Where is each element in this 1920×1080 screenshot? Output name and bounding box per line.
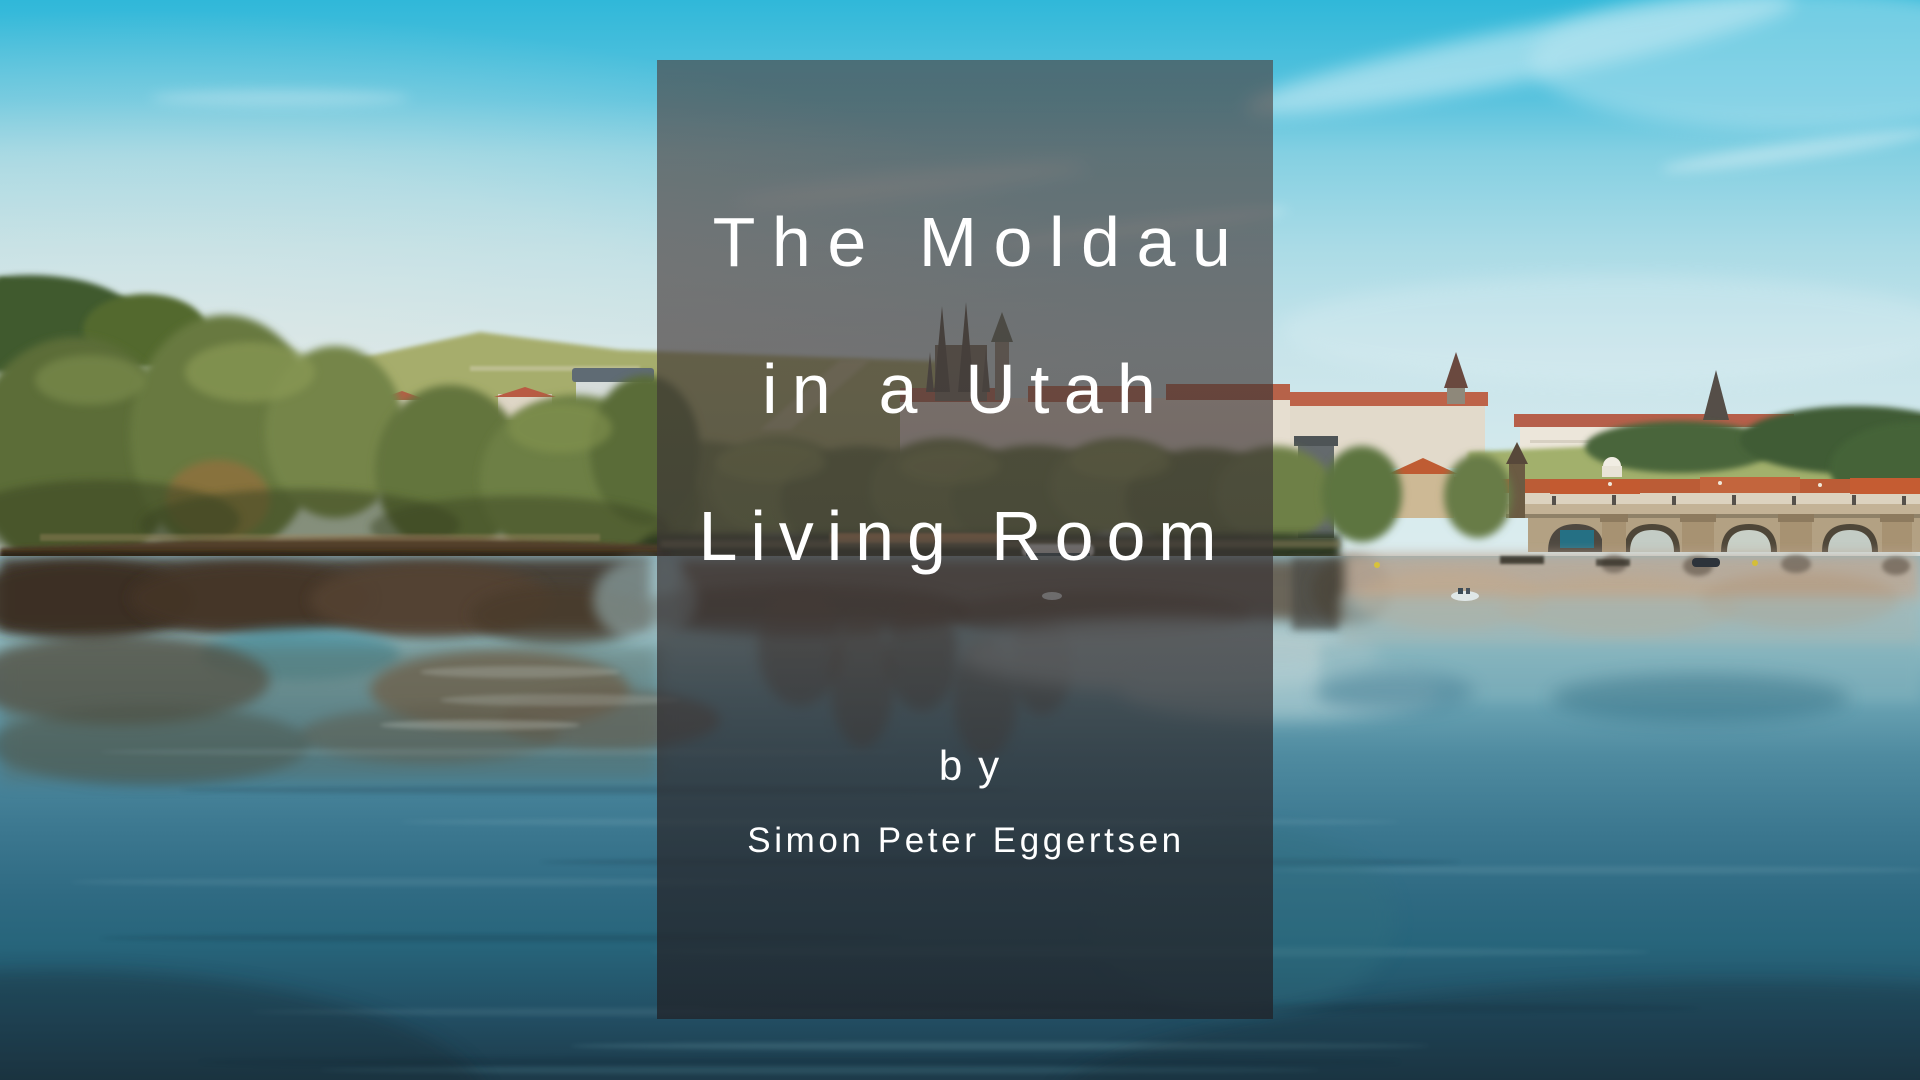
svg-text:Living Room: Living Room [699,497,1230,575]
svg-text:by: by [939,742,1015,789]
svg-text:in a Utah: in a Utah [762,350,1170,428]
svg-text:Simon Peter Eggertsen: Simon Peter Eggertsen [747,821,1184,860]
svg-text:The Moldau: The Moldau [713,203,1248,281]
